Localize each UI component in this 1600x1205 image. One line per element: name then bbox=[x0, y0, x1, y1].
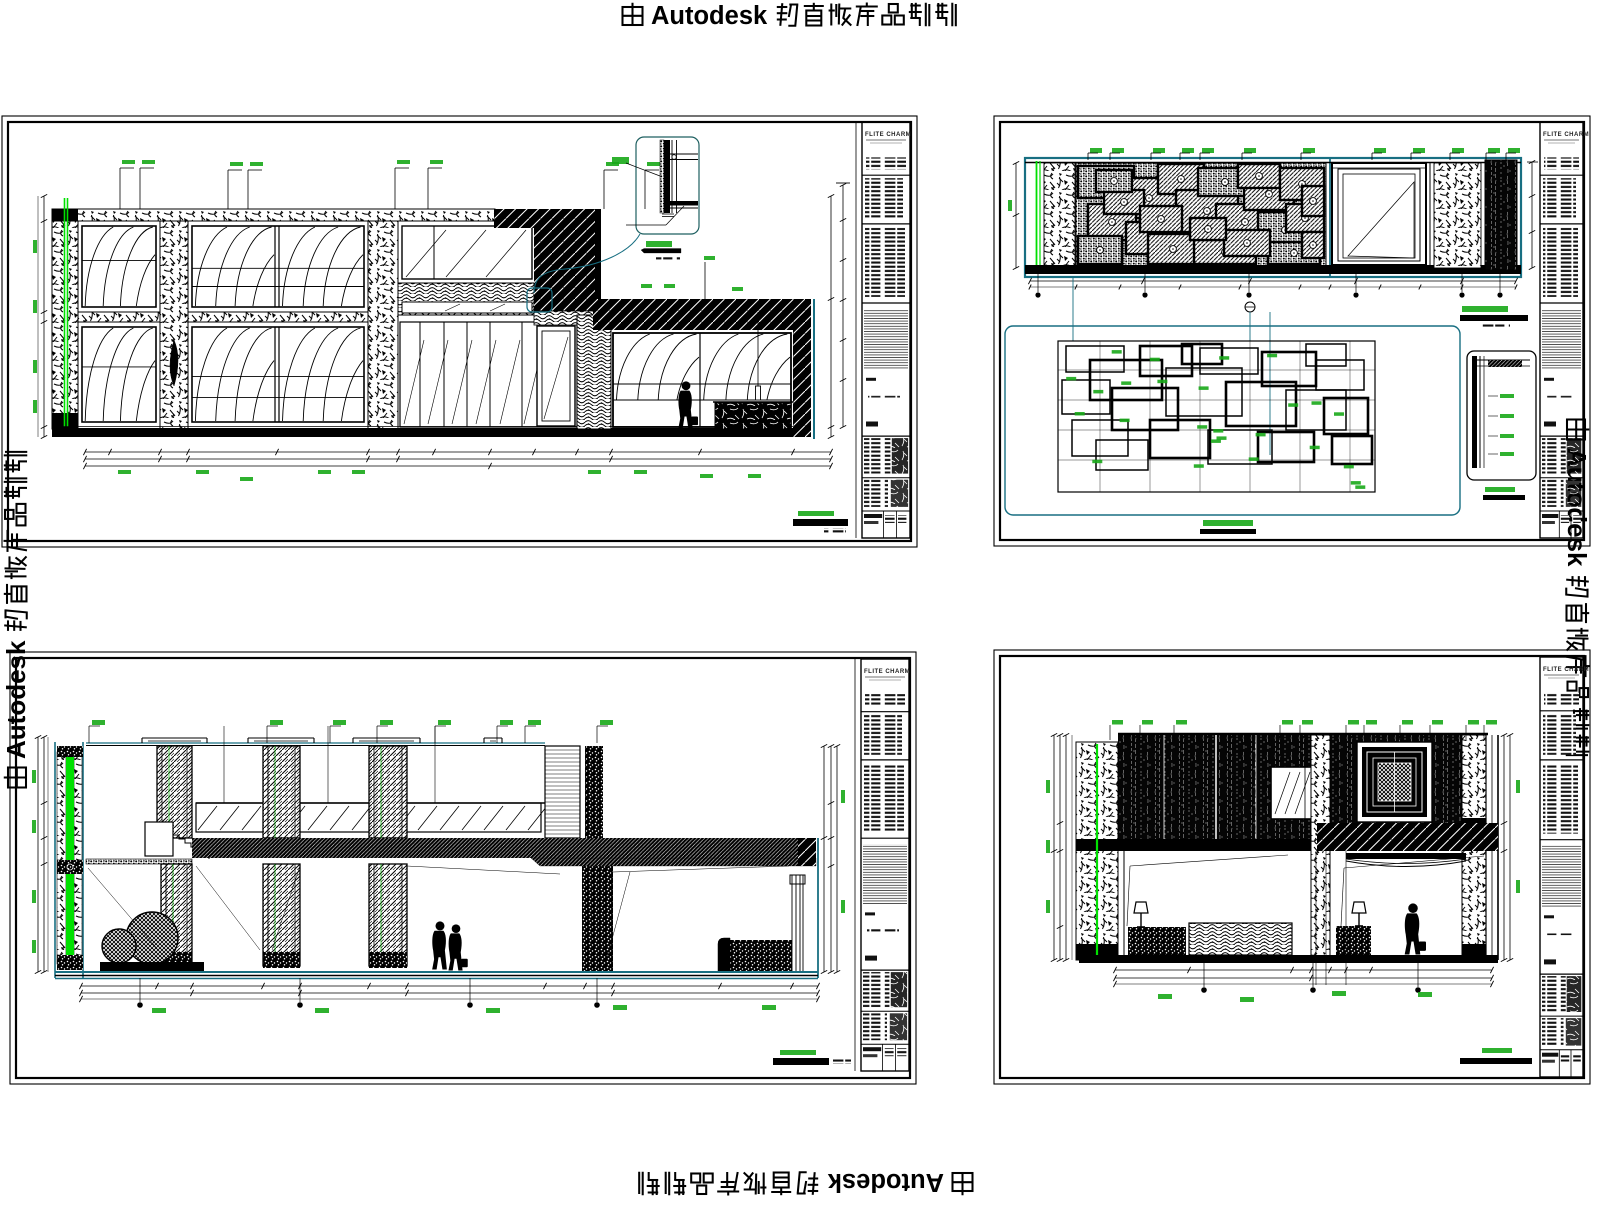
svg-text:FLITE CHARM: FLITE CHARM bbox=[865, 132, 911, 138]
svg-text:Autodesk: Autodesk bbox=[651, 2, 768, 30]
svg-text:FLITE CHARM: FLITE CHARM bbox=[1543, 667, 1589, 673]
svg-text:FLITE CHARM: FLITE CHARM bbox=[1543, 132, 1589, 138]
svg-text:Autodesk: Autodesk bbox=[827, 1168, 944, 1196]
svg-text:FLITE CHARM: FLITE CHARM bbox=[864, 669, 910, 675]
